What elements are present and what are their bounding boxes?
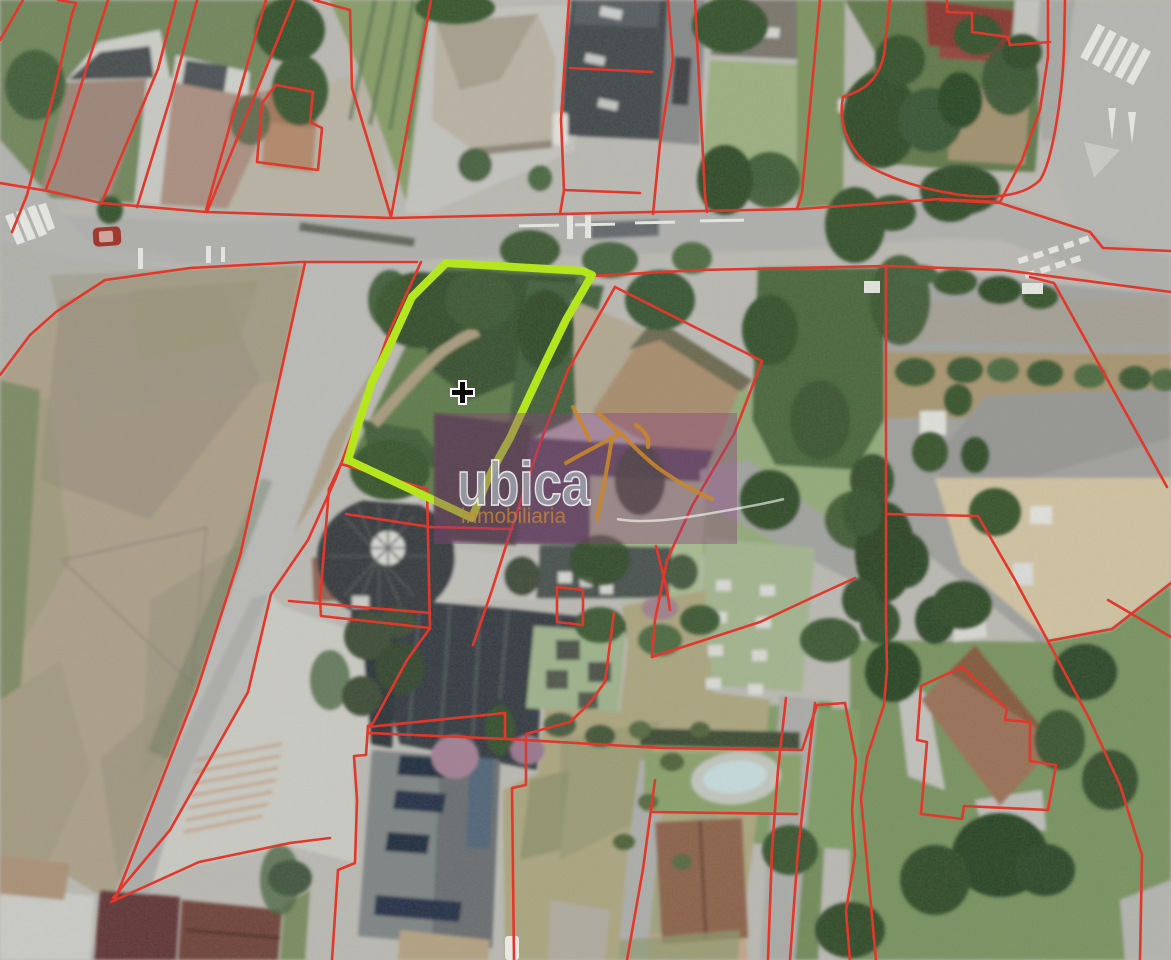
svg-text:inmobiliaria: inmobiliaria <box>461 505 566 528</box>
